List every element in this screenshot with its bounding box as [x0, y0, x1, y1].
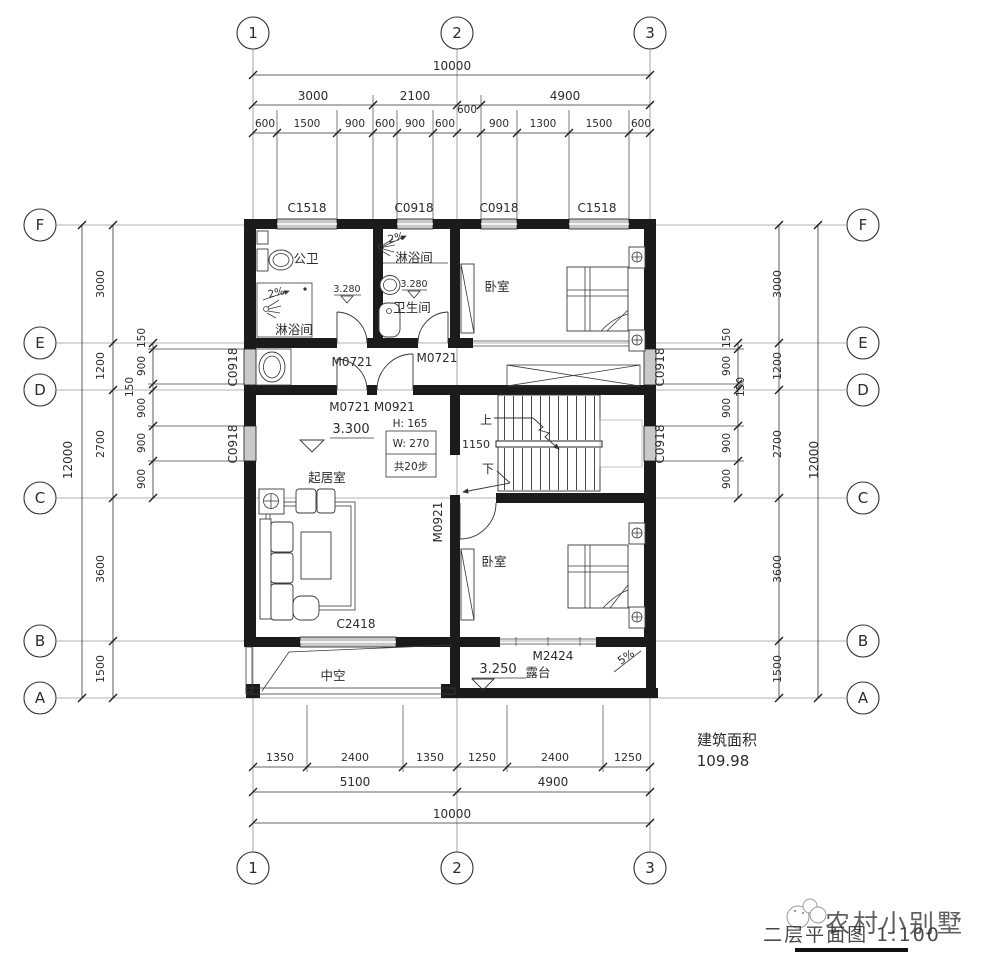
room-bedroom-top: 卧室 [484, 279, 509, 294]
grid-bubble-B-right: B [858, 632, 868, 650]
dim-rs-0: 150 [721, 328, 733, 348]
dim-t3-7: 1300 [530, 118, 557, 130]
grid-bubble-E-left: E [35, 334, 44, 352]
window-c0918-left1 [244, 349, 256, 385]
side-table [259, 489, 284, 514]
grid-bubble-1-bottom: 1 [248, 859, 258, 877]
area-label: 建筑面积 [697, 731, 757, 749]
dim-t3-1: 1500 [294, 118, 321, 130]
label-m2424: M2424 [533, 649, 574, 663]
dim-rs-5: 900 [721, 469, 733, 489]
living-room-furniture [259, 489, 355, 620]
stair-width-dim: 1150 [462, 438, 490, 451]
area-value: 109.98 [697, 752, 750, 770]
label-c0918-a: C0918 [395, 201, 434, 215]
label-c0918-left1: C0918 [226, 348, 240, 387]
grid-bubble-2-top: 2 [452, 24, 462, 42]
void-parapet-bottom [246, 688, 455, 694]
grid-bubble-3-top: 3 [645, 24, 655, 42]
label-c2418: C2418 [337, 617, 376, 631]
dim-lm-0: 3000 [94, 270, 107, 298]
stair-note-box: H: 165 W: 270 共20步 [386, 418, 436, 477]
dim-rs-2: 150 [735, 377, 747, 397]
stair: 上 下 1150 H: 165 W: 270 共20步 [386, 395, 642, 492]
watermark-text: 农村小别墅 [825, 909, 965, 938]
grid-bubble-B-left: B [35, 632, 45, 650]
dim-rm-4: 1500 [771, 655, 784, 683]
label-c1518-a: C1518 [288, 201, 327, 215]
door-m2424-sill [500, 637, 596, 646]
grid-bubble-D-left: D [34, 381, 46, 399]
grid-bubble-C-right: C [858, 489, 868, 507]
dim-ls-0: 150 [136, 328, 148, 348]
dim-rs-4: 900 [721, 433, 733, 453]
dim-b1-3: 1250 [468, 751, 496, 764]
room-shower-b: 淋浴间 [395, 250, 433, 265]
dim-b1-1: 2400 [341, 751, 369, 764]
closet-crossed [507, 365, 640, 386]
level-terrace: 3.250 [479, 662, 516, 677]
label-c1518-b: C1518 [578, 201, 617, 215]
toilet-tank [257, 249, 268, 271]
dim-lm-4: 1500 [94, 655, 107, 683]
dim-rs-3: 900 [721, 398, 733, 418]
dim-top-3000: 3000 [298, 89, 329, 103]
dim-top-2100: 2100 [400, 89, 431, 103]
bedroom-bottom-furniture [461, 523, 645, 628]
slope-2pct-b: 2% [387, 230, 406, 246]
slope-2pct-a: 2% [267, 285, 286, 301]
label-m0721-m0921: M0721 M0921 [329, 400, 415, 414]
room-bath-public: 公卫 [293, 251, 318, 266]
grid-bubble-2-bottom: 2 [452, 859, 462, 877]
grid-bubble-C-left: C [35, 489, 45, 507]
stair-steps-note: 共20步 [394, 461, 428, 473]
grid-bubble-A-left: A [35, 689, 46, 707]
title-underline [795, 948, 908, 952]
grid-bubble-A-right: A [858, 689, 869, 707]
dim-bottom-total: 10000 [433, 807, 471, 821]
dim-t3-9: 600 [631, 118, 651, 130]
dim-b2-0: 5100 [340, 775, 371, 789]
level-living: 3.300 [332, 422, 369, 437]
dim-rm-3: 3600 [771, 555, 784, 583]
label-c0918-right1: C0918 [653, 348, 667, 387]
title-block: 二层平面图 1:100 农村小别墅 [763, 899, 965, 952]
level-bath-a: 3.280 [333, 284, 360, 295]
dim-lm-1: 1200 [94, 352, 107, 380]
dim-right-total: 12000 [807, 441, 821, 479]
armchair [317, 489, 335, 513]
shower-head-icon [264, 300, 282, 318]
stair-down-label: 下 [482, 462, 494, 476]
stair-height-note: H: 165 [393, 418, 428, 430]
floor-plan-drawing: 1 2 3 1 2 3 F E D C B A F E D C B A 1000… [0, 0, 1000, 971]
dim-b2-1: 4900 [538, 775, 569, 789]
bedroom-top-furniture [461, 247, 645, 351]
dim-t3-2: 900 [345, 118, 365, 130]
room-void: 中空 [320, 668, 345, 683]
dim-t3-0: 600 [255, 118, 275, 130]
dim-t3-8: 1500 [586, 118, 613, 130]
grid-bubble-1-top: 1 [248, 24, 258, 42]
room-terrace: 露台 [525, 665, 550, 680]
label-c0918-right2: C0918 [653, 425, 667, 464]
label-m0921: M0921 [431, 502, 445, 543]
dim-rm-2: 2700 [771, 430, 784, 458]
void-diagonal [262, 645, 452, 691]
dim-t3-6: 900 [489, 118, 509, 130]
dim-b1-0: 1350 [266, 751, 294, 764]
ottoman [293, 596, 319, 620]
label-c0918-b: C0918 [480, 201, 519, 215]
grid-bubble-F-right: F [859, 216, 868, 234]
dim-t3-5: 600 [435, 118, 455, 130]
room-shower-a: 淋浴间 [275, 322, 313, 337]
level-bath-b: 3.280 [400, 279, 427, 290]
dim-top-total: 10000 [433, 59, 471, 73]
void-terrace [246, 645, 455, 694]
dim-t3-3: 600 [375, 118, 395, 130]
window-c0918-left2 [244, 426, 256, 461]
sofa-back [260, 519, 271, 619]
grid-bubble-E-right: E [858, 334, 867, 352]
dim-ls-3: 900 [136, 398, 148, 418]
dim-rm-1: 1200 [771, 352, 784, 380]
dimension-text: 10000 3000 2100 4900 600 600 1500 900 60… [61, 59, 821, 821]
dim-b1-5: 1250 [614, 751, 642, 764]
dim-lm-2: 2700 [94, 430, 107, 458]
coffee-table [301, 532, 331, 579]
dim-ls-2: 150 [124, 377, 136, 397]
dim-t3-4: 900 [405, 118, 425, 130]
label-c0918-left2: C0918 [226, 425, 240, 464]
dim-b1-4: 2400 [541, 751, 569, 764]
dim-lm-3: 3600 [94, 555, 107, 583]
dim-rm-0: 3000 [771, 270, 784, 298]
room-living: 起居室 [308, 470, 346, 485]
armchair [296, 489, 316, 513]
room-bedroom-bottom: 卧室 [481, 554, 506, 569]
dim-rs-1: 900 [721, 356, 733, 376]
label-m0721-a: M0721 [332, 355, 373, 369]
washbasin [380, 276, 400, 295]
stair-tread-note: W: 270 [393, 438, 430, 450]
stair-up-label: 上 [480, 413, 492, 427]
dim-left-total: 12000 [61, 441, 75, 479]
dim-ls-1: 900 [136, 356, 148, 376]
dim-top-600mid: 600 [457, 104, 477, 116]
dim-b1-2: 1350 [416, 751, 444, 764]
corridor-washbasin [256, 349, 291, 385]
bed [568, 545, 628, 608]
grid-bubble-3-bottom: 3 [645, 859, 655, 877]
bed [567, 267, 628, 331]
label-m0721-b: M0721 [417, 351, 458, 365]
floor-plan-sheet: 1 2 3 1 2 3 F E D C B A F E D C B A 1000… [0, 0, 1000, 971]
room-bathroom: 卫生间 [393, 300, 431, 315]
grid-bubble-D-right: D [857, 381, 869, 399]
dim-ls-4: 900 [136, 433, 148, 453]
grid-bubble-F-left: F [36, 216, 45, 234]
area-note: 建筑面积 109.98 [697, 731, 757, 770]
dim-ls-5: 900 [136, 469, 148, 489]
dim-top-4900: 4900 [550, 89, 581, 103]
